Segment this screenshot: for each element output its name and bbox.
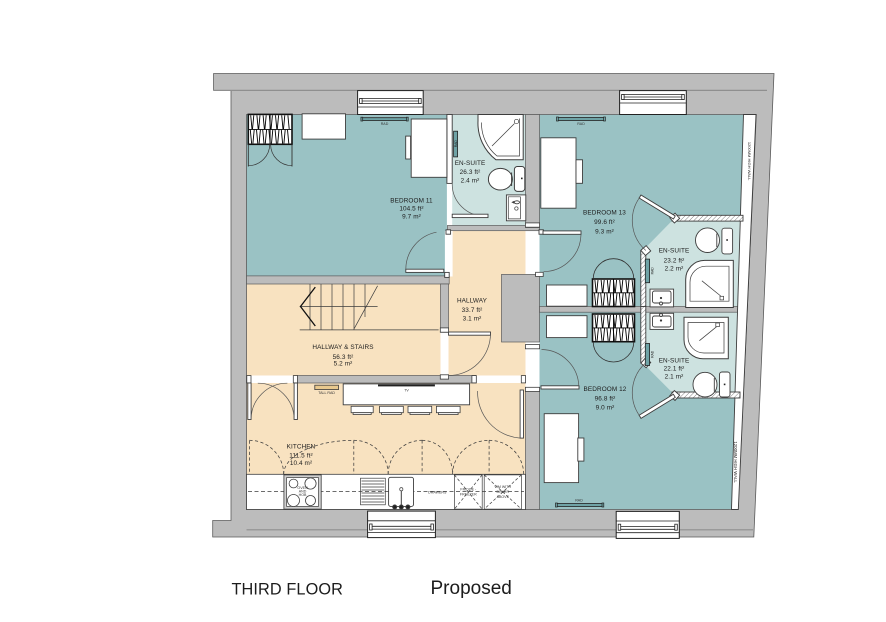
svg-text:TV: TV <box>404 389 409 393</box>
svg-text:33.7 ft²: 33.7 ft² <box>462 307 483 314</box>
svg-text:RAD: RAD <box>454 140 458 148</box>
svg-text:9.0 m²: 9.0 m² <box>596 405 615 412</box>
svg-text:5.2 m²: 5.2 m² <box>334 361 353 368</box>
svg-text:BEDROOM 13: BEDROOM 13 <box>583 210 626 217</box>
svg-text:RAD: RAD <box>577 122 585 126</box>
svg-text:FRIDGE -: FRIDGE - <box>460 488 477 492</box>
svg-text:RAD: RAD <box>651 267 655 275</box>
svg-text:9.7 m²: 9.7 m² <box>402 214 421 221</box>
svg-text:EN-SUITE: EN-SUITE <box>659 248 690 255</box>
svg-text:23.2 ft²: 23.2 ft² <box>664 258 685 265</box>
svg-text:22.1 ft²: 22.1 ft² <box>664 366 685 373</box>
svg-text:1200MM HIGH WALL: 1200MM HIGH WALL <box>733 441 738 483</box>
svg-text:1200MM HIGH WALL: 1200MM HIGH WALL <box>747 142 752 181</box>
svg-text:111.5 ft²: 111.5 ft² <box>289 453 312 460</box>
svg-text:DRAWERS: DRAWERS <box>428 491 447 495</box>
svg-text:ABOVE: ABOVE <box>497 495 510 499</box>
svg-text:3.1 m²: 3.1 m² <box>463 316 482 323</box>
svg-text:2.1 m²: 2.1 m² <box>665 374 684 381</box>
svg-text:FREEZER: FREEZER <box>460 493 477 497</box>
svg-text:HALLWAY & STAIRS: HALLWAY & STAIRS <box>312 344 373 351</box>
svg-text:KITCHEN: KITCHEN <box>287 444 316 451</box>
svg-text:BEDROOM 11: BEDROOM 11 <box>390 198 433 205</box>
svg-text:THIRD FLOOR: THIRD FLOOR <box>232 581 343 599</box>
svg-text:104.5 ft²: 104.5 ft² <box>399 206 423 213</box>
svg-text:2.4 m²: 2.4 m² <box>461 178 480 185</box>
svg-text:TALL RAD: TALL RAD <box>318 391 335 395</box>
svg-text:2.2 m²: 2.2 m² <box>665 266 684 273</box>
svg-text:99.6 ft²: 99.6 ft² <box>594 219 615 226</box>
svg-text:HOB: HOB <box>299 493 307 497</box>
svg-text:RAD: RAD <box>651 350 655 358</box>
svg-text:BEDROOM 12: BEDROOM 12 <box>584 386 627 393</box>
svg-text:9.3 m²: 9.3 m² <box>595 229 614 236</box>
svg-text:10.4 m²: 10.4 m² <box>290 460 312 467</box>
svg-text:26.3 ft²: 26.3 ft² <box>460 169 481 176</box>
svg-text:RAD: RAD <box>381 122 389 126</box>
svg-text:EN-SUITE: EN-SUITE <box>659 358 690 365</box>
svg-text:DRYER: DRYER <box>497 490 510 494</box>
svg-text:96.8 ft²: 96.8 ft² <box>595 396 616 403</box>
svg-text:HALLWAY: HALLWAY <box>457 298 488 305</box>
svg-text:RAD: RAD <box>575 499 583 503</box>
svg-text:EN-SUITE: EN-SUITE <box>455 160 486 167</box>
svg-text:Proposed: Proposed <box>431 578 512 599</box>
svg-text:WM WITH: WM WITH <box>495 485 512 489</box>
